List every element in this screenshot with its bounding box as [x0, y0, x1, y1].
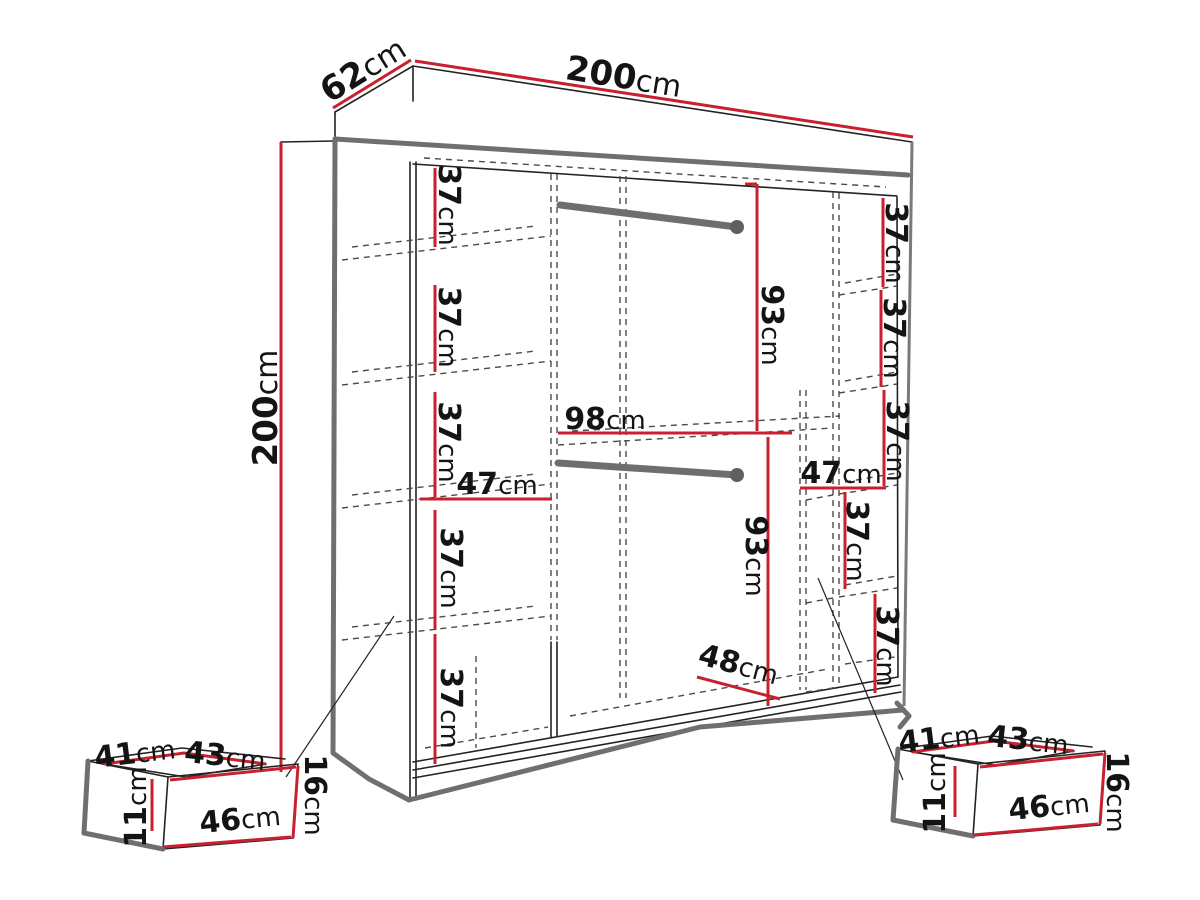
dim-left-gap-2: 37cm: [431, 286, 466, 367]
dim-right-drawer-side-height: 11cm: [918, 752, 953, 833]
hanging-rail-bottom-end: [730, 468, 744, 482]
dim-left-drawer-side-height: 11cm: [119, 766, 154, 847]
wardrobe-dimension-diagram: 62cm 200cm 200cm 37cm 37cm 37cm 47cm 37c…: [0, 0, 1200, 900]
dim-right-gap-1: 37cm: [878, 202, 913, 283]
dim-right-gap-2: 37cm: [876, 297, 911, 378]
dim-right-gap-4: 37cm: [839, 500, 874, 581]
dim-wardrobe-height: 200cm: [246, 350, 286, 467]
dim-middle-upper-width: 98cm: [564, 402, 645, 437]
dim-right-drawer-front-height: 16cm: [1099, 751, 1134, 832]
dim-upper-hanging-height: 93cm: [754, 284, 789, 365]
dim-left-gap-5: 37cm: [433, 667, 468, 748]
dim-left-width: 47cm: [456, 467, 537, 502]
dim-right-gap-3: 37cm: [879, 400, 914, 481]
dim-left-drawer-front-height: 16cm: [297, 754, 332, 835]
diagram-background: [0, 0, 1200, 900]
dim-lower-hanging-height: 93cm: [738, 515, 773, 596]
dim-left-gap-1: 37cm: [431, 164, 466, 245]
hanging-rail-top-end: [730, 220, 744, 234]
dim-right-gap-5: 37cm: [869, 605, 904, 686]
wardrobe-dimension-diagram-page: 62cm 200cm 200cm 37cm 37cm 37cm 47cm 37c…: [0, 0, 1200, 900]
dim-right-width: 47cm: [800, 456, 881, 491]
dim-left-gap-4: 37cm: [433, 527, 468, 608]
